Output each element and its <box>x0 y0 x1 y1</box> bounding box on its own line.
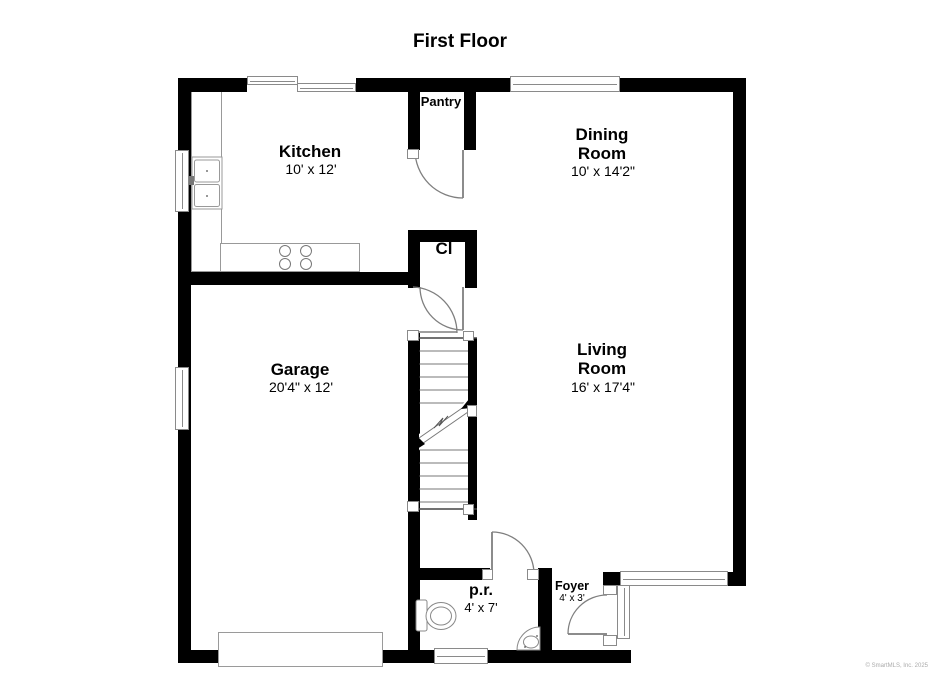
door-jambs <box>408 150 617 646</box>
living-room-label: Living Room <box>577 340 627 378</box>
staircase <box>412 338 477 509</box>
dining-room-label: Dining Room <box>576 125 629 163</box>
pantry-door-arc <box>415 150 463 198</box>
powder-room-door-arc <box>492 532 534 574</box>
dining-room-dims: 10' x 14'2" <box>571 164 635 180</box>
copyright-watermark: © SmartMLS, Inc. 2025 <box>866 663 928 669</box>
pantry-label: Pantry <box>421 95 461 110</box>
page-title: First Floor <box>413 31 507 52</box>
stove-fixture <box>280 246 312 270</box>
fixtures-overlay <box>0 0 930 676</box>
closet-label: Cl <box>436 239 453 258</box>
garage-label: Garage <box>271 360 330 379</box>
kitchen-dims: 10' x 12' <box>285 162 336 178</box>
kitchen-label: Kitchen <box>279 142 341 161</box>
pr-sink-fixture <box>517 627 540 650</box>
foyer-label: Foyer <box>555 579 589 593</box>
garage-dims: 20'4" x 12' <box>269 380 333 396</box>
floor-plan: First Floor Kitchen 10' x 12' Pantry Din… <box>0 0 930 676</box>
powder-room-label: p.r. <box>469 582 493 600</box>
toilet-fixture <box>416 600 456 631</box>
foyer-dims: 4' x 3' <box>559 593 585 604</box>
powder-room-dims: 4' x 7' <box>464 601 497 616</box>
living-room-dims: 16' x 17'4" <box>571 380 635 396</box>
garage-entry-door-arc <box>413 287 457 333</box>
kitchen-sink-fixture <box>189 157 222 209</box>
